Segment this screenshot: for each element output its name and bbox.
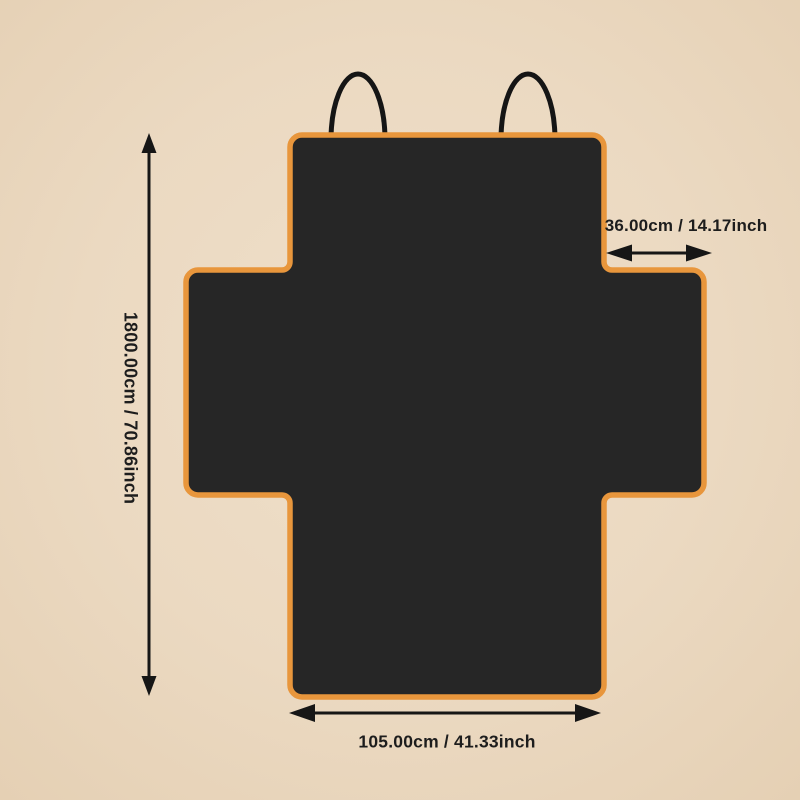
headrest-strap-left — [331, 74, 385, 140]
bottom-width-dimension-label: 105.00cm / 41.33inch — [358, 732, 535, 753]
headrest-strap-right — [501, 74, 555, 140]
bottom-width-arrowhead-left — [289, 704, 315, 722]
side-flap-arrow — [606, 245, 712, 262]
height-arrowhead-bottom — [142, 676, 157, 696]
side-flap-dimension-label: 36.00cm / 14.17inch — [605, 216, 768, 236]
height-dimension-label: 1800.00cm / 70.86inch — [120, 312, 141, 504]
product-dimension-diagram: 1800.00cm / 70.86inch 36.00cm / 14.17inc… — [0, 0, 800, 800]
bottom-width-arrow — [289, 704, 601, 722]
side-flap-arrowhead-right — [686, 245, 712, 262]
side-flap-arrowhead-left — [606, 245, 632, 262]
height-arrow — [142, 133, 157, 696]
height-arrowhead-top — [142, 133, 157, 153]
headrest-straps — [331, 74, 555, 140]
bottom-width-arrowhead-right — [575, 704, 601, 722]
